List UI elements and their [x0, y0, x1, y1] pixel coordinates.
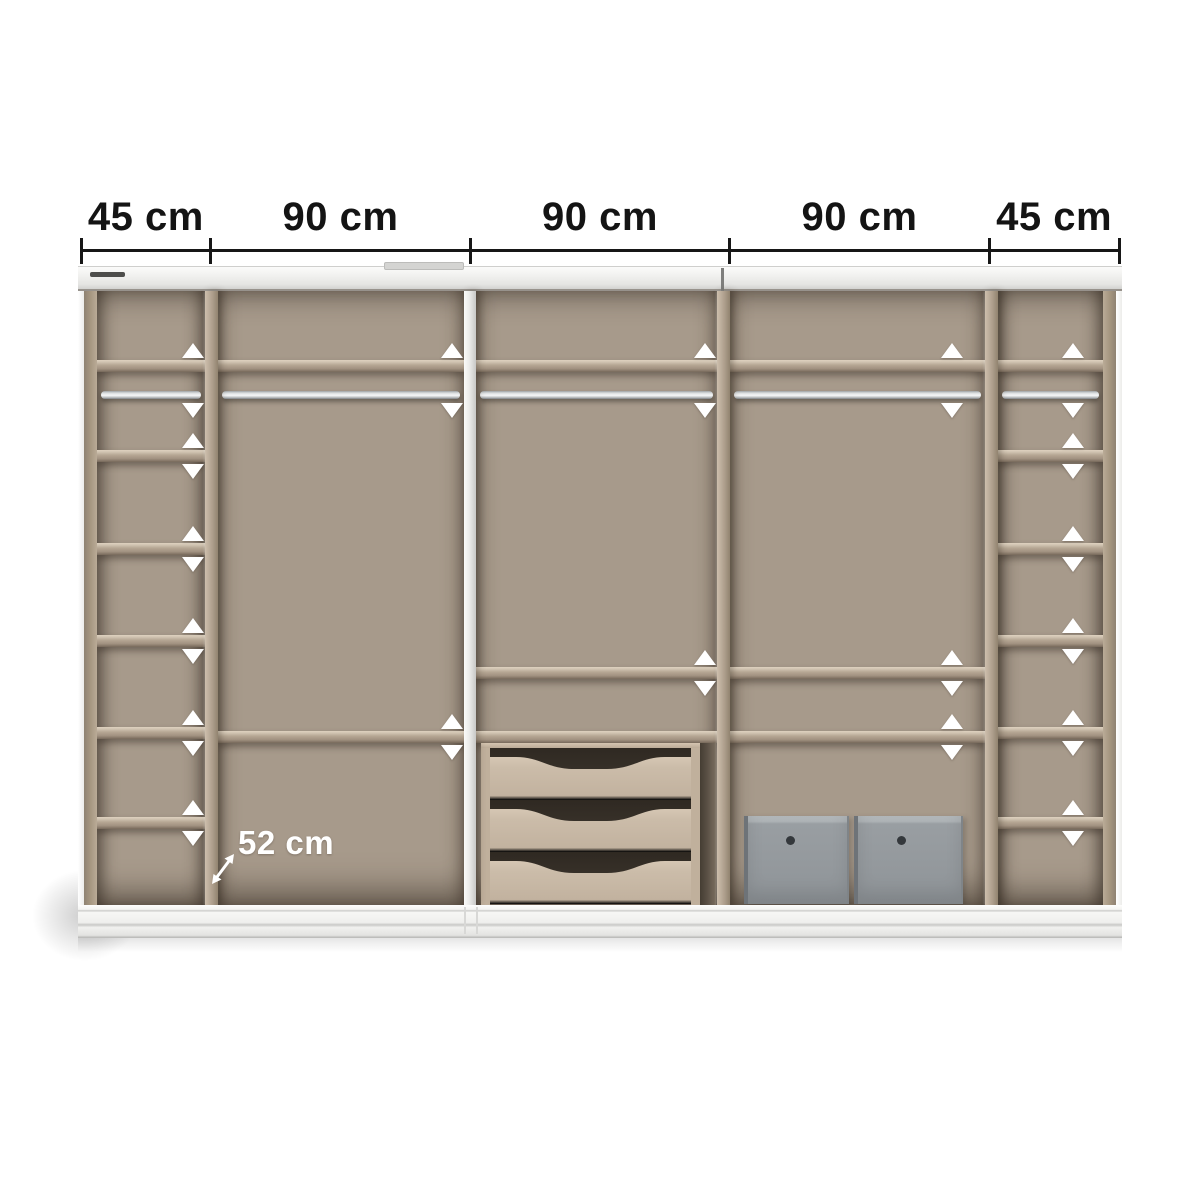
- back-panel-bay-left-90: [218, 291, 464, 905]
- drawer-row: [490, 800, 691, 852]
- drawer-row: [490, 748, 691, 800]
- divider: [717, 291, 730, 905]
- arrow-up-icon: [182, 618, 204, 633]
- arrow-up-icon: [441, 714, 463, 729]
- arrow-down-icon: [182, 464, 204, 479]
- arrow-up-icon: [1062, 710, 1084, 725]
- top-track: [78, 266, 1122, 291]
- arrow-down-icon: [182, 831, 204, 846]
- divider: [985, 291, 998, 905]
- hanging-rail: [1002, 391, 1099, 399]
- track-slot-icon: [90, 272, 125, 277]
- storage-box: [744, 816, 849, 904]
- arrow-down-icon: [182, 557, 204, 572]
- outer-edge-left: [78, 291, 84, 905]
- hanging-rail: [222, 391, 460, 399]
- depth-arrow-icon: [208, 850, 238, 886]
- drawer-row: [490, 852, 691, 904]
- shelf: [97, 450, 205, 462]
- shelf: [476, 667, 717, 679]
- arrow-down-icon: [941, 681, 963, 696]
- drawer-front: [490, 748, 691, 800]
- shelf: [730, 667, 985, 679]
- shelf: [218, 731, 464, 743]
- arrow-up-icon: [1062, 618, 1084, 633]
- arrow-up-icon: [941, 650, 963, 665]
- shelf: [97, 817, 205, 829]
- arrow-down-icon: [182, 741, 204, 756]
- arrow-up-icon: [441, 343, 463, 358]
- arrow-up-icon: [182, 800, 204, 815]
- arrow-down-icon: [182, 403, 204, 418]
- shelf: [998, 360, 1103, 372]
- track-seam: [721, 268, 724, 291]
- arrow-down-icon: [941, 745, 963, 760]
- shelf: [730, 731, 985, 743]
- hanging-rail: [734, 391, 981, 399]
- arrow-up-icon: [182, 526, 204, 541]
- wardrobe: [0, 0, 1200, 1200]
- divider: [205, 291, 218, 905]
- shelf: [998, 635, 1103, 647]
- shelf: [476, 731, 717, 743]
- arrow-up-icon: [941, 714, 963, 729]
- base-seam: [464, 907, 466, 934]
- side-wall-left: [84, 291, 97, 905]
- shelf: [97, 635, 205, 647]
- back-panel-column-right: [998, 291, 1103, 905]
- door-damper-icon: [384, 262, 464, 270]
- drawer-unit-gap: [700, 743, 716, 905]
- box-buttonhole-icon: [897, 836, 906, 845]
- arrow-down-icon: [1062, 403, 1084, 418]
- arrow-down-icon: [1062, 557, 1084, 572]
- drawer-unit-side: [691, 743, 700, 905]
- arrow-down-icon: [1062, 831, 1084, 846]
- base-seam: [476, 907, 478, 934]
- wardrobe-diagram: 45 cm 90 cm 90 cm 90 cm 45 cm 52 cm: [0, 0, 1200, 1200]
- arrow-up-icon: [1062, 526, 1084, 541]
- shelf: [998, 817, 1103, 829]
- hanging-rail: [480, 391, 713, 399]
- shelf: [97, 543, 205, 555]
- storage-box: [854, 816, 963, 904]
- arrow-down-icon: [941, 403, 963, 418]
- shelf: [476, 360, 717, 372]
- drawer-handle-cutout: [490, 861, 691, 904]
- arrow-up-icon: [1062, 433, 1084, 448]
- base-plinth: [78, 905, 1122, 938]
- floor-shadow: [78, 938, 1122, 952]
- shelf: [998, 543, 1103, 555]
- shelf: [730, 360, 985, 372]
- shelf: [998, 727, 1103, 739]
- arrow-up-icon: [1062, 343, 1084, 358]
- arrow-up-icon: [694, 650, 716, 665]
- side-wall-right: [1103, 291, 1116, 905]
- shelf: [97, 727, 205, 739]
- drawer-unit-side: [481, 743, 490, 905]
- arrow-down-icon: [1062, 464, 1084, 479]
- arrow-up-icon: [694, 343, 716, 358]
- back-panel-bay-right-90: [730, 291, 985, 905]
- drawer-handle-cutout: [490, 809, 691, 852]
- arrow-down-icon: [694, 403, 716, 418]
- arrow-up-icon: [182, 710, 204, 725]
- drawer-front: [490, 800, 691, 852]
- arrow-up-icon: [1062, 800, 1084, 815]
- arrow-down-icon: [694, 681, 716, 696]
- drawer-handle-cutout: [490, 757, 691, 800]
- shelf: [218, 360, 464, 372]
- depth-label: 52 cm: [238, 826, 334, 859]
- box-buttonhole-icon: [786, 836, 795, 845]
- arrow-up-icon: [182, 433, 204, 448]
- shelf: [998, 450, 1103, 462]
- arrow-down-icon: [182, 649, 204, 664]
- arrow-down-icon: [441, 745, 463, 760]
- arrow-up-icon: [182, 343, 204, 358]
- drawer-unit: [481, 743, 700, 905]
- arrow-up-icon: [941, 343, 963, 358]
- arrow-down-icon: [1062, 741, 1084, 756]
- arrow-down-icon: [441, 403, 463, 418]
- outer-edge-right: [1116, 291, 1122, 905]
- arrow-down-icon: [1062, 649, 1084, 664]
- hanging-rail: [101, 391, 201, 399]
- drawer-front: [490, 852, 691, 904]
- divider: [464, 291, 476, 905]
- shelf: [97, 360, 205, 372]
